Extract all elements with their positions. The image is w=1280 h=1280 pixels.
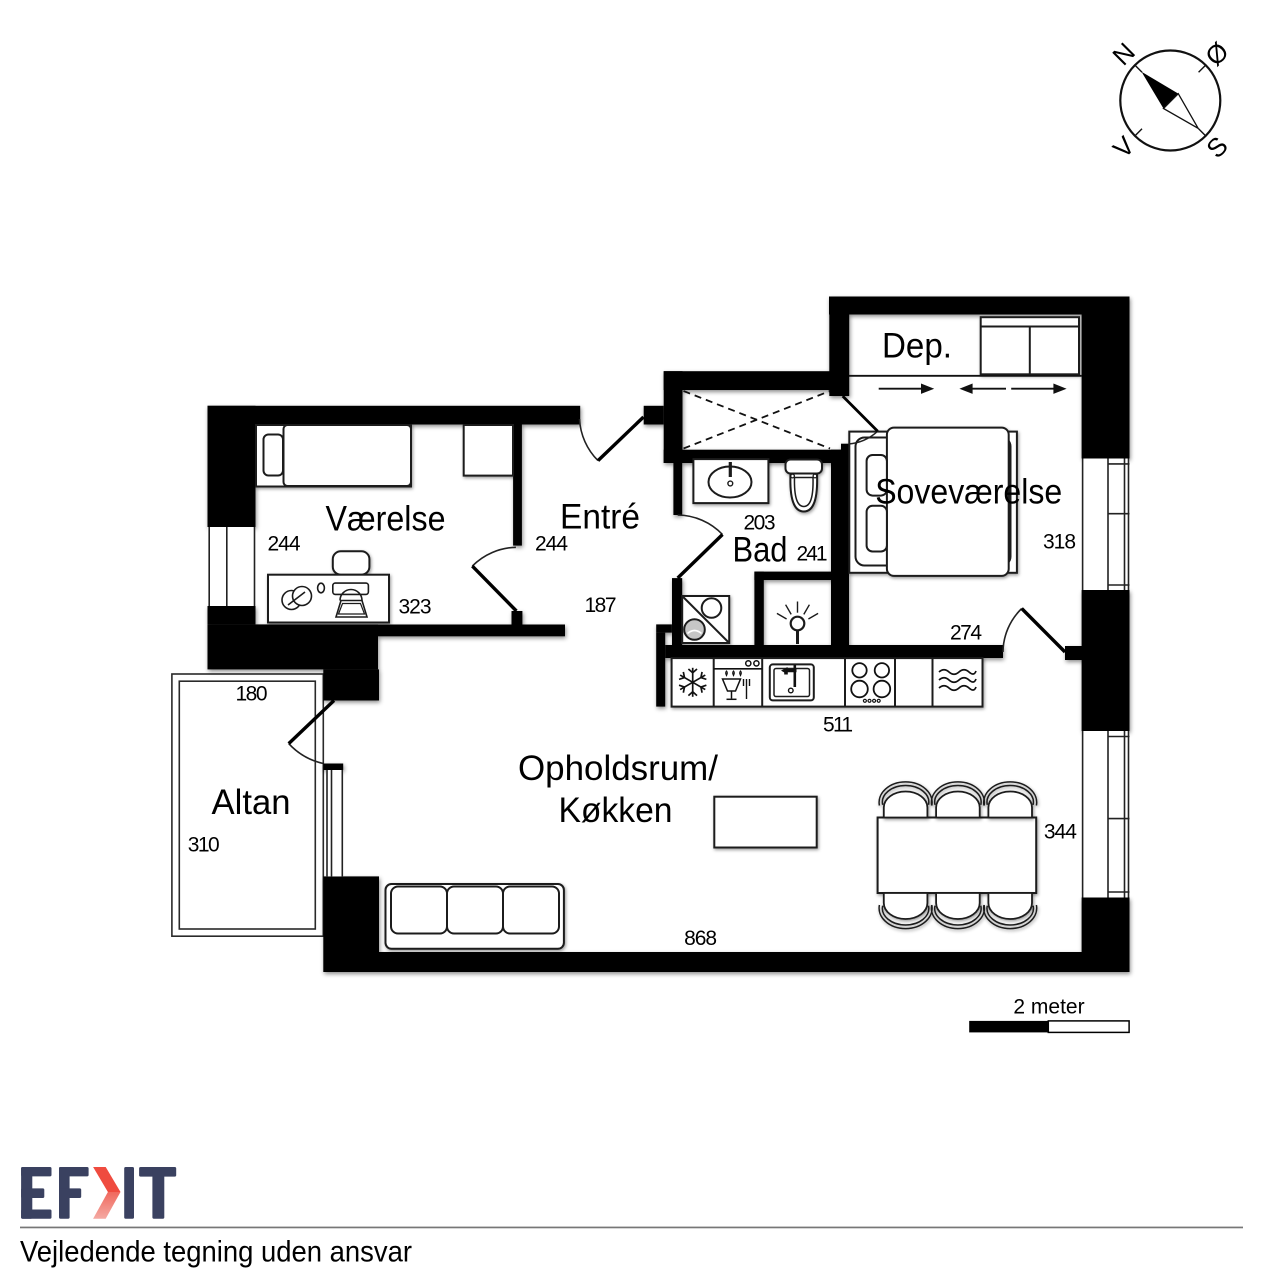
svg-text:244: 244	[535, 532, 568, 555]
svg-text:187: 187	[585, 594, 617, 617]
svg-text:310: 310	[188, 833, 220, 856]
svg-text:Entré: Entré	[560, 498, 640, 537]
svg-text:203: 203	[744, 511, 776, 534]
svg-text:274: 274	[950, 622, 982, 645]
svg-text:244: 244	[268, 532, 301, 555]
svg-text:Altan: Altan	[212, 783, 291, 822]
svg-text:Soveværelse: Soveværelse	[875, 472, 1062, 511]
svg-text:344: 344	[1044, 821, 1077, 844]
svg-text:868: 868	[684, 927, 717, 950]
svg-text:323: 323	[399, 596, 432, 619]
svg-text:Dep.: Dep.	[882, 326, 952, 365]
svg-text:Vejledende tegning uden ansvar: Vejledende tegning uden ansvar	[20, 1235, 412, 1268]
svg-text:511: 511	[823, 713, 853, 736]
svg-text:Bad: Bad	[733, 530, 788, 569]
svg-text:Værelse: Værelse	[326, 500, 446, 539]
svg-text:Køkken: Køkken	[559, 791, 673, 830]
svg-text:318: 318	[1043, 531, 1076, 554]
svg-text:180: 180	[236, 683, 268, 706]
svg-text:Opholdsrum/: Opholdsrum/	[518, 749, 718, 788]
svg-text:2 meter: 2 meter	[1013, 996, 1084, 1019]
svg-text:241: 241	[797, 542, 828, 565]
